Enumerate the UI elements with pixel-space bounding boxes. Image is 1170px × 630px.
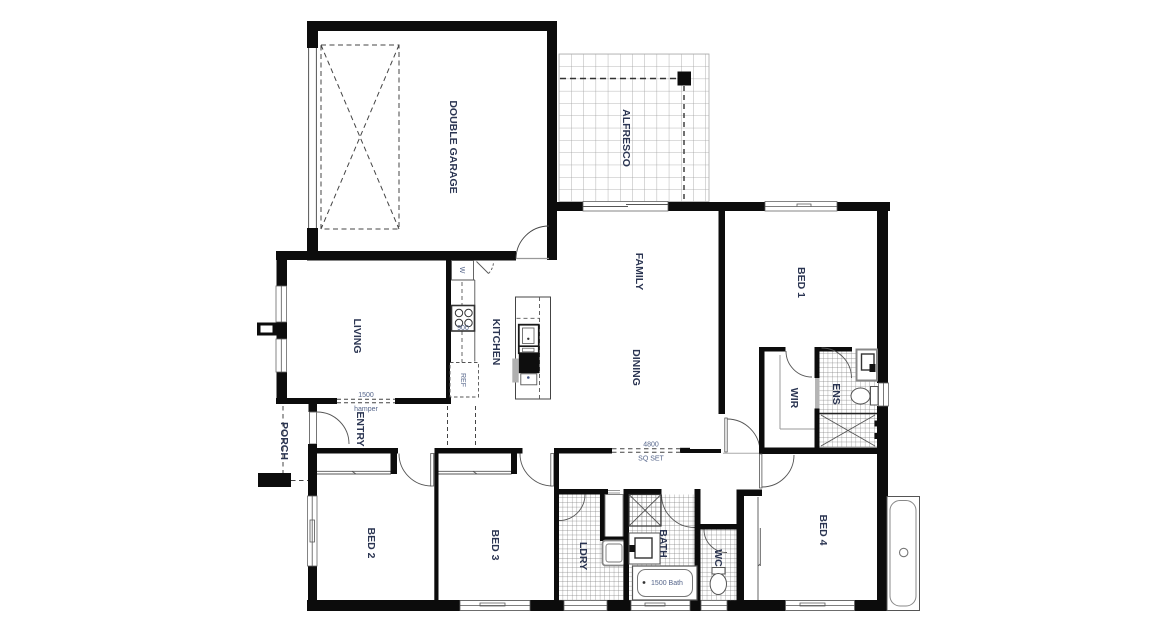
svg-text:ALFRESCO: ALFRESCO — [620, 109, 632, 167]
svg-text:BED 1: BED 1 — [795, 267, 807, 298]
svg-text:ENS: ENS — [830, 383, 842, 405]
svg-text:DINING: DINING — [630, 349, 642, 386]
svg-text:BED 4: BED 4 — [817, 515, 829, 546]
svg-text:FAMILY: FAMILY — [633, 253, 645, 291]
svg-text:900: 900 — [457, 325, 469, 332]
svg-text:4800: 4800 — [643, 442, 659, 449]
svg-text:LIVING: LIVING — [351, 318, 363, 353]
svg-text:BED 3: BED 3 — [489, 530, 501, 561]
svg-text:ENTRY: ENTRY — [354, 411, 366, 446]
svg-text:WIR: WIR — [788, 388, 800, 409]
svg-text:WC: WC — [712, 549, 724, 567]
svg-text:BATH: BATH — [657, 529, 669, 557]
svg-text:W: W — [458, 267, 465, 274]
svg-text:DOUBLE GARAGE: DOUBLE GARAGE — [447, 100, 459, 193]
svg-text:BED 2: BED 2 — [365, 528, 377, 559]
svg-text:SQ SET: SQ SET — [638, 456, 664, 463]
svg-text:KITCHEN: KITCHEN — [490, 319, 502, 366]
svg-text:PORCH: PORCH — [278, 422, 290, 460]
svg-text:REF: REF — [459, 373, 466, 387]
svg-text:LDRY: LDRY — [577, 542, 589, 570]
svg-text:1500: 1500 — [358, 392, 374, 399]
svg-text:1500 Bath: 1500 Bath — [651, 580, 683, 587]
